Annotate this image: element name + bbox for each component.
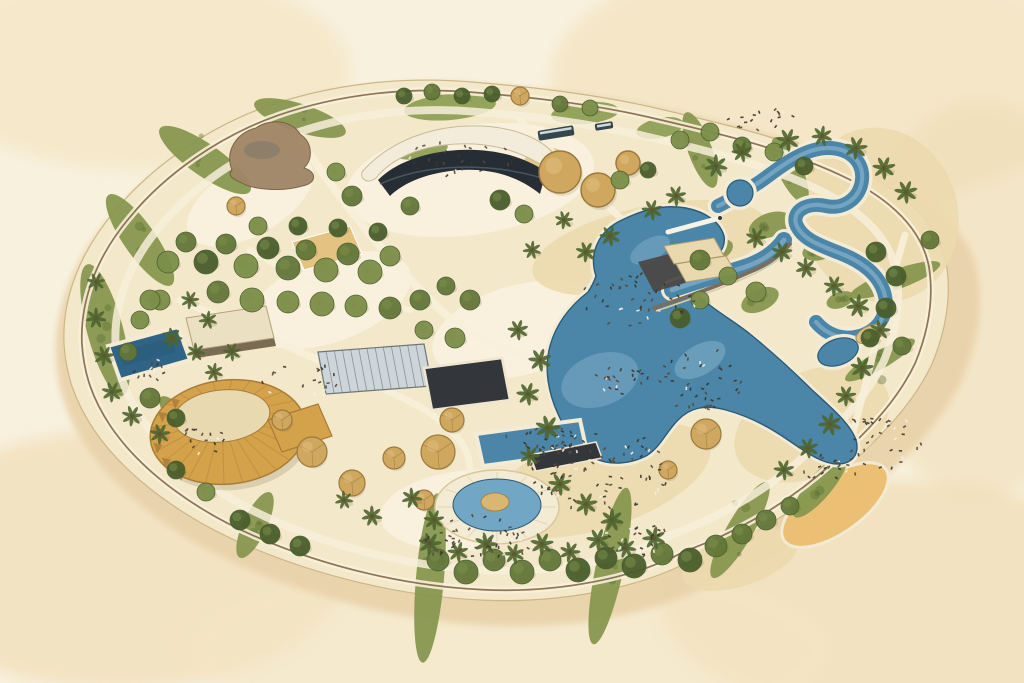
tree-canopy-highlight	[463, 293, 472, 302]
rock-patch	[244, 141, 280, 159]
tree-canopy-highlight	[382, 300, 392, 310]
tree-canopy-highlight	[371, 225, 379, 233]
tree-canopy-highlight	[879, 301, 888, 310]
tree-canopy-highlight	[767, 145, 775, 153]
visitor	[583, 469, 585, 472]
tree-canopy-highlight	[923, 233, 931, 241]
tree-canopy-highlight	[486, 88, 493, 95]
visitor	[500, 531, 502, 534]
palm-trunk	[624, 546, 627, 549]
visitor	[675, 305, 677, 308]
visitor	[471, 555, 474, 557]
palm-trunk	[212, 370, 215, 373]
tree-canopy-highlight	[430, 552, 440, 562]
visitor	[671, 380, 674, 382]
hut-highlight	[662, 464, 668, 470]
hut-highlight	[427, 440, 439, 452]
palm-trunk	[432, 518, 435, 521]
palm-trunk	[456, 550, 459, 553]
tree-canopy-highlight	[345, 189, 354, 198]
palm-trunk	[370, 514, 373, 517]
tree-canopy-highlight	[708, 538, 718, 548]
tree-canopy-highlight	[293, 539, 302, 548]
palm-trunk	[806, 446, 809, 449]
visitor	[454, 171, 456, 174]
palm-trunk	[558, 482, 561, 485]
hut-highlight	[444, 412, 452, 420]
shrub	[692, 155, 698, 161]
visitor	[744, 122, 747, 124]
flat-roof-building	[424, 358, 510, 410]
pontoon-tip	[718, 216, 722, 220]
visitor	[899, 461, 902, 463]
shrub	[96, 334, 105, 343]
palm-trunk	[878, 328, 881, 331]
palm-trunk	[110, 390, 113, 393]
tree-canopy-highlight	[417, 323, 425, 331]
visitor	[899, 450, 902, 452]
tree-canopy-highlight	[569, 561, 580, 572]
palm-trunk	[856, 304, 859, 307]
visitor	[632, 374, 634, 377]
tree-canopy-highlight	[340, 246, 350, 256]
park-map-canvas	[0, 0, 1024, 683]
palm-trunk	[904, 190, 907, 193]
palm-trunk	[832, 284, 835, 287]
palm-trunk	[804, 266, 807, 269]
tree-canopy-highlight	[493, 193, 502, 202]
tree-canopy-highlight	[121, 345, 129, 353]
tree-canopy-highlight	[584, 102, 591, 109]
tree-canopy-highlight	[280, 294, 290, 304]
palm-trunk	[158, 432, 161, 435]
palm-trunk	[342, 498, 345, 501]
tree-canopy-highlight	[625, 557, 636, 568]
visitor	[526, 444, 528, 447]
tree-canopy-highlight	[613, 173, 621, 181]
water-park-map-illustration	[0, 0, 1024, 683]
visitor	[474, 547, 477, 549]
tree-canopy-highlight	[348, 298, 358, 308]
tree-canopy-highlight	[361, 263, 372, 274]
visitor	[717, 398, 720, 400]
visitor	[536, 466, 539, 468]
visitor	[143, 374, 145, 377]
visitor	[685, 387, 687, 390]
tree-canopy-highlight	[554, 98, 561, 105]
tree-canopy-highlight	[329, 165, 337, 173]
hut-highlight	[230, 200, 236, 206]
splash-island	[481, 493, 509, 511]
palm-trunk	[650, 208, 653, 211]
palm-trunk	[102, 354, 105, 357]
palm-trunk	[584, 250, 587, 253]
tree-canopy-highlight	[243, 291, 254, 302]
tree-canopy-highlight	[179, 235, 188, 244]
visitor	[570, 462, 573, 464]
palm-trunk	[882, 166, 885, 169]
visitor	[570, 450, 572, 453]
visitor	[205, 440, 208, 442]
tree-canopy-highlight	[169, 463, 177, 471]
thatched-dome	[539, 151, 581, 193]
tree-canopy-highlight	[299, 243, 308, 252]
palm-trunk	[194, 350, 197, 353]
palm-trunk	[526, 392, 529, 395]
tree-canopy-highlight	[263, 527, 272, 536]
visitor	[440, 532, 443, 534]
tree-canopy-highlight	[143, 391, 152, 400]
palm-trunk	[786, 138, 789, 141]
palm-trunk	[568, 550, 571, 553]
palm-trunk	[820, 134, 823, 137]
visitor	[452, 538, 455, 540]
visitor	[498, 546, 500, 549]
tree-canopy-highlight	[703, 125, 711, 133]
palm-trunk	[516, 328, 519, 331]
tree-canopy-highlight	[457, 563, 468, 574]
tree-canopy-highlight	[693, 293, 701, 301]
tree-canopy-highlight	[413, 293, 422, 302]
tree-canopy-highlight	[160, 254, 170, 264]
visitor	[863, 449, 865, 452]
palm-trunk	[562, 218, 565, 221]
tree-canopy-highlight	[681, 551, 692, 562]
hut-highlight	[387, 450, 395, 458]
palm-trunk	[608, 234, 611, 237]
tree-canopy-highlight	[210, 284, 220, 294]
palm-trunk	[410, 496, 413, 499]
tree-canopy-highlight	[693, 253, 702, 262]
tree-canopy-highlight	[251, 219, 259, 227]
visitor	[432, 553, 434, 556]
palm-trunk	[828, 422, 831, 425]
round-pool	[727, 180, 753, 206]
visitor	[210, 433, 212, 436]
palm-trunk	[652, 536, 655, 539]
palm-trunk	[230, 350, 233, 353]
tree-canopy-highlight	[863, 331, 871, 339]
hut-highlight	[514, 90, 520, 96]
dome-highlight	[586, 178, 600, 192]
palm-trunk	[528, 454, 531, 457]
palm-trunk	[530, 248, 533, 251]
palm-trunk	[740, 150, 743, 153]
visitor	[858, 453, 860, 456]
visitor	[436, 153, 439, 155]
shrub	[104, 304, 111, 311]
visitor	[505, 435, 507, 438]
tree-canopy-highlight	[237, 257, 248, 268]
palm-trunk	[854, 146, 857, 149]
visitor	[620, 546, 622, 549]
palm-trunk	[512, 552, 515, 555]
visitor	[657, 488, 659, 491]
tree-canopy-highlight	[143, 293, 152, 302]
tree-canopy-highlight	[279, 259, 290, 270]
visitor	[194, 429, 197, 431]
tree-canopy-highlight	[199, 485, 207, 493]
tree-canopy-highlight	[169, 411, 177, 419]
tree-canopy-highlight	[456, 90, 463, 97]
tree-canopy-highlight	[233, 513, 242, 522]
visitor	[699, 361, 701, 364]
tree-canopy-highlight	[448, 331, 457, 340]
palm-trunk	[610, 518, 613, 521]
dome-highlight	[545, 157, 562, 174]
shrub	[141, 227, 146, 232]
visitor	[480, 553, 482, 556]
tree-canopy-highlight	[403, 199, 411, 207]
palm-trunk	[584, 502, 587, 505]
visitor	[507, 163, 509, 166]
palm-trunk	[782, 468, 785, 471]
visitor	[439, 141, 441, 144]
hut-highlight	[276, 413, 283, 420]
hut-highlight	[302, 442, 313, 453]
tree-canopy-highlight	[513, 563, 524, 574]
visitor	[574, 447, 577, 449]
visitor	[605, 532, 608, 534]
visitor	[664, 376, 667, 378]
tree-canopy-highlight	[869, 245, 878, 254]
tree-canopy-highlight	[759, 513, 768, 522]
thatched-dome	[581, 173, 615, 207]
shrub	[842, 295, 849, 302]
shrub	[196, 163, 200, 167]
dome-highlight	[620, 155, 630, 165]
visitor	[568, 498, 571, 500]
tree-canopy-highlight	[197, 253, 208, 264]
shrub	[737, 552, 742, 557]
tree-canopy-highlight	[486, 552, 496, 562]
palm-trunk	[94, 316, 97, 319]
shrub	[302, 117, 306, 121]
visitor	[642, 554, 645, 556]
palm-trunk	[596, 538, 599, 541]
tree-canopy-highlight	[895, 339, 903, 347]
tree-canopy-highlight	[783, 499, 791, 507]
palm-trunk	[188, 298, 191, 301]
shrub	[763, 225, 769, 231]
visitor	[486, 545, 488, 548]
tree-canopy-highlight	[331, 221, 339, 229]
tree-canopy-highlight	[749, 285, 758, 294]
tree-canopy-highlight	[317, 261, 328, 272]
tree-canopy-highlight	[313, 295, 324, 306]
palm-trunk	[538, 358, 541, 361]
palm-trunk	[94, 280, 97, 283]
tree-canopy-highlight	[133, 313, 141, 321]
palm-trunk	[860, 366, 863, 369]
hut-highlight	[696, 424, 707, 435]
palm-trunk	[546, 426, 549, 429]
tree-canopy-highlight	[721, 269, 729, 277]
tree-canopy-highlight	[383, 249, 392, 258]
palm-trunk	[206, 318, 209, 321]
tree-canopy-highlight	[517, 207, 525, 215]
visitor	[544, 439, 547, 441]
tree-canopy-highlight	[673, 311, 682, 320]
visitor	[452, 530, 455, 532]
visitor	[640, 475, 642, 478]
palm-trunk	[130, 414, 133, 417]
palm-trunk	[714, 164, 717, 167]
tree-canopy-highlight	[889, 269, 898, 278]
visitor	[547, 489, 550, 491]
tree-canopy-highlight	[642, 164, 649, 171]
tree-canopy-highlight	[219, 237, 228, 246]
palm-trunk	[754, 236, 757, 239]
tree-canopy-highlight	[398, 90, 405, 97]
tree-canopy-highlight	[291, 219, 299, 227]
tree-canopy-highlight	[260, 240, 270, 250]
visitor	[853, 439, 856, 441]
palm-trunk	[780, 250, 783, 253]
hut-highlight	[344, 474, 353, 483]
palm-trunk	[540, 542, 543, 545]
visitor	[740, 116, 743, 118]
tree-canopy-highlight	[673, 133, 681, 141]
tree-canopy-highlight	[797, 159, 805, 167]
visitor	[623, 543, 626, 545]
shrub	[199, 133, 204, 138]
tree-canopy-highlight	[439, 279, 447, 287]
visitor	[609, 476, 612, 478]
shrub	[815, 492, 820, 497]
visitor	[570, 443, 572, 446]
visitor	[586, 307, 588, 310]
tree-canopy-highlight	[426, 86, 433, 93]
tree-canopy-highlight	[735, 527, 744, 536]
palm-trunk	[170, 336, 173, 339]
palm-trunk	[674, 194, 677, 197]
palm-trunk	[844, 394, 847, 397]
